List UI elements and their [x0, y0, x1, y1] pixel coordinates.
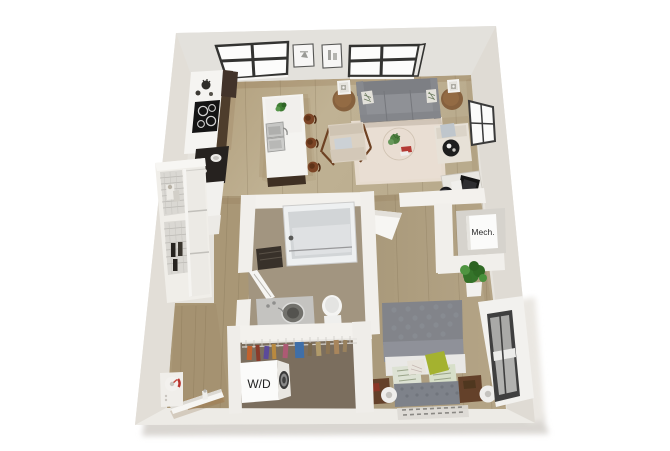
- svg-text:Mech.: Mech.: [471, 227, 494, 237]
- svg-text:W/D: W/D: [247, 377, 271, 391]
